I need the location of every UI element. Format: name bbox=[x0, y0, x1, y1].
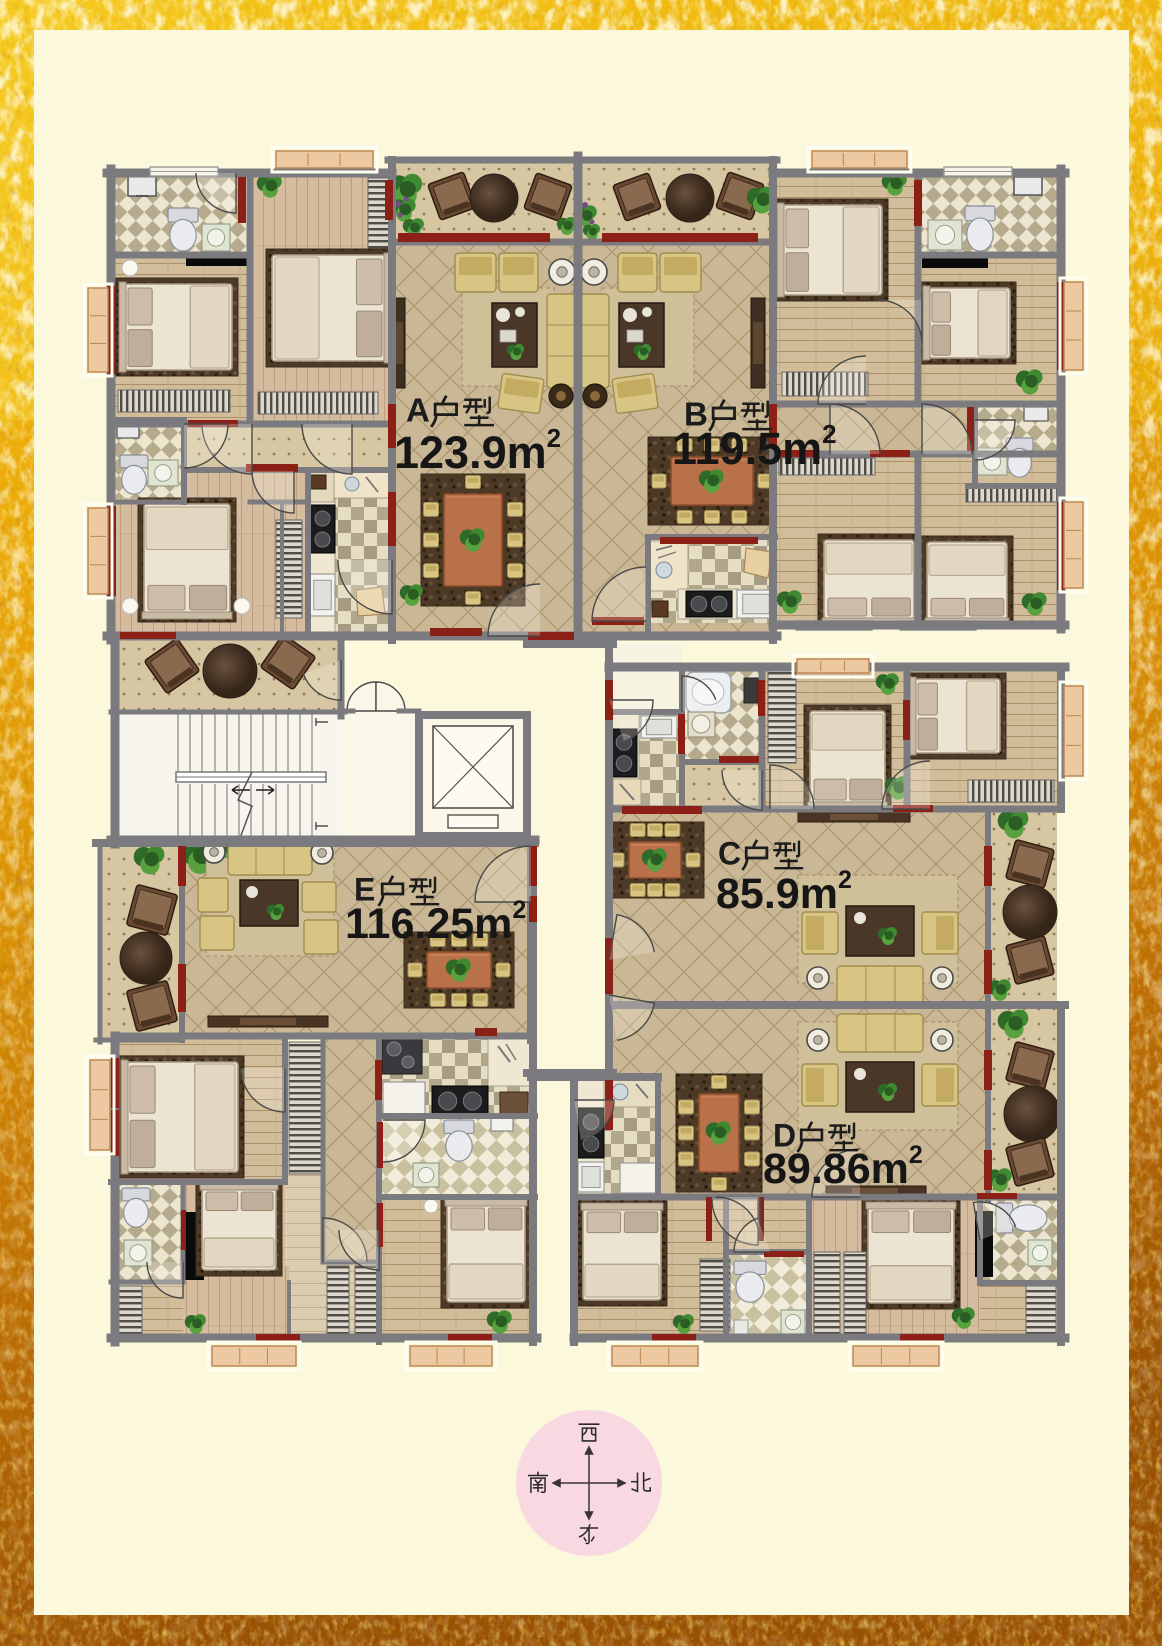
svg-text:123.9m2: 123.9m2 bbox=[394, 423, 561, 478]
svg-text:C: C bbox=[718, 836, 741, 872]
svg-text:A: A bbox=[406, 391, 430, 428]
svg-text:85.9m2: 85.9m2 bbox=[716, 866, 852, 918]
svg-text:89.86m2: 89.86m2 bbox=[763, 1141, 923, 1193]
svg-text:116.25m2: 116.25m2 bbox=[345, 896, 526, 948]
svg-text:119.5m2: 119.5m2 bbox=[672, 419, 837, 474]
